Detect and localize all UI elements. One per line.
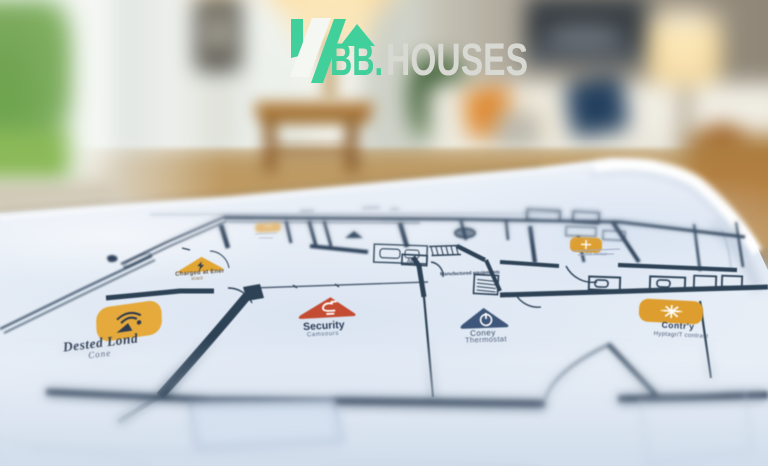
svg-text:BB.: BB. bbox=[330, 34, 383, 85]
svg-text:HOUSES: HOUSES bbox=[386, 34, 528, 85]
